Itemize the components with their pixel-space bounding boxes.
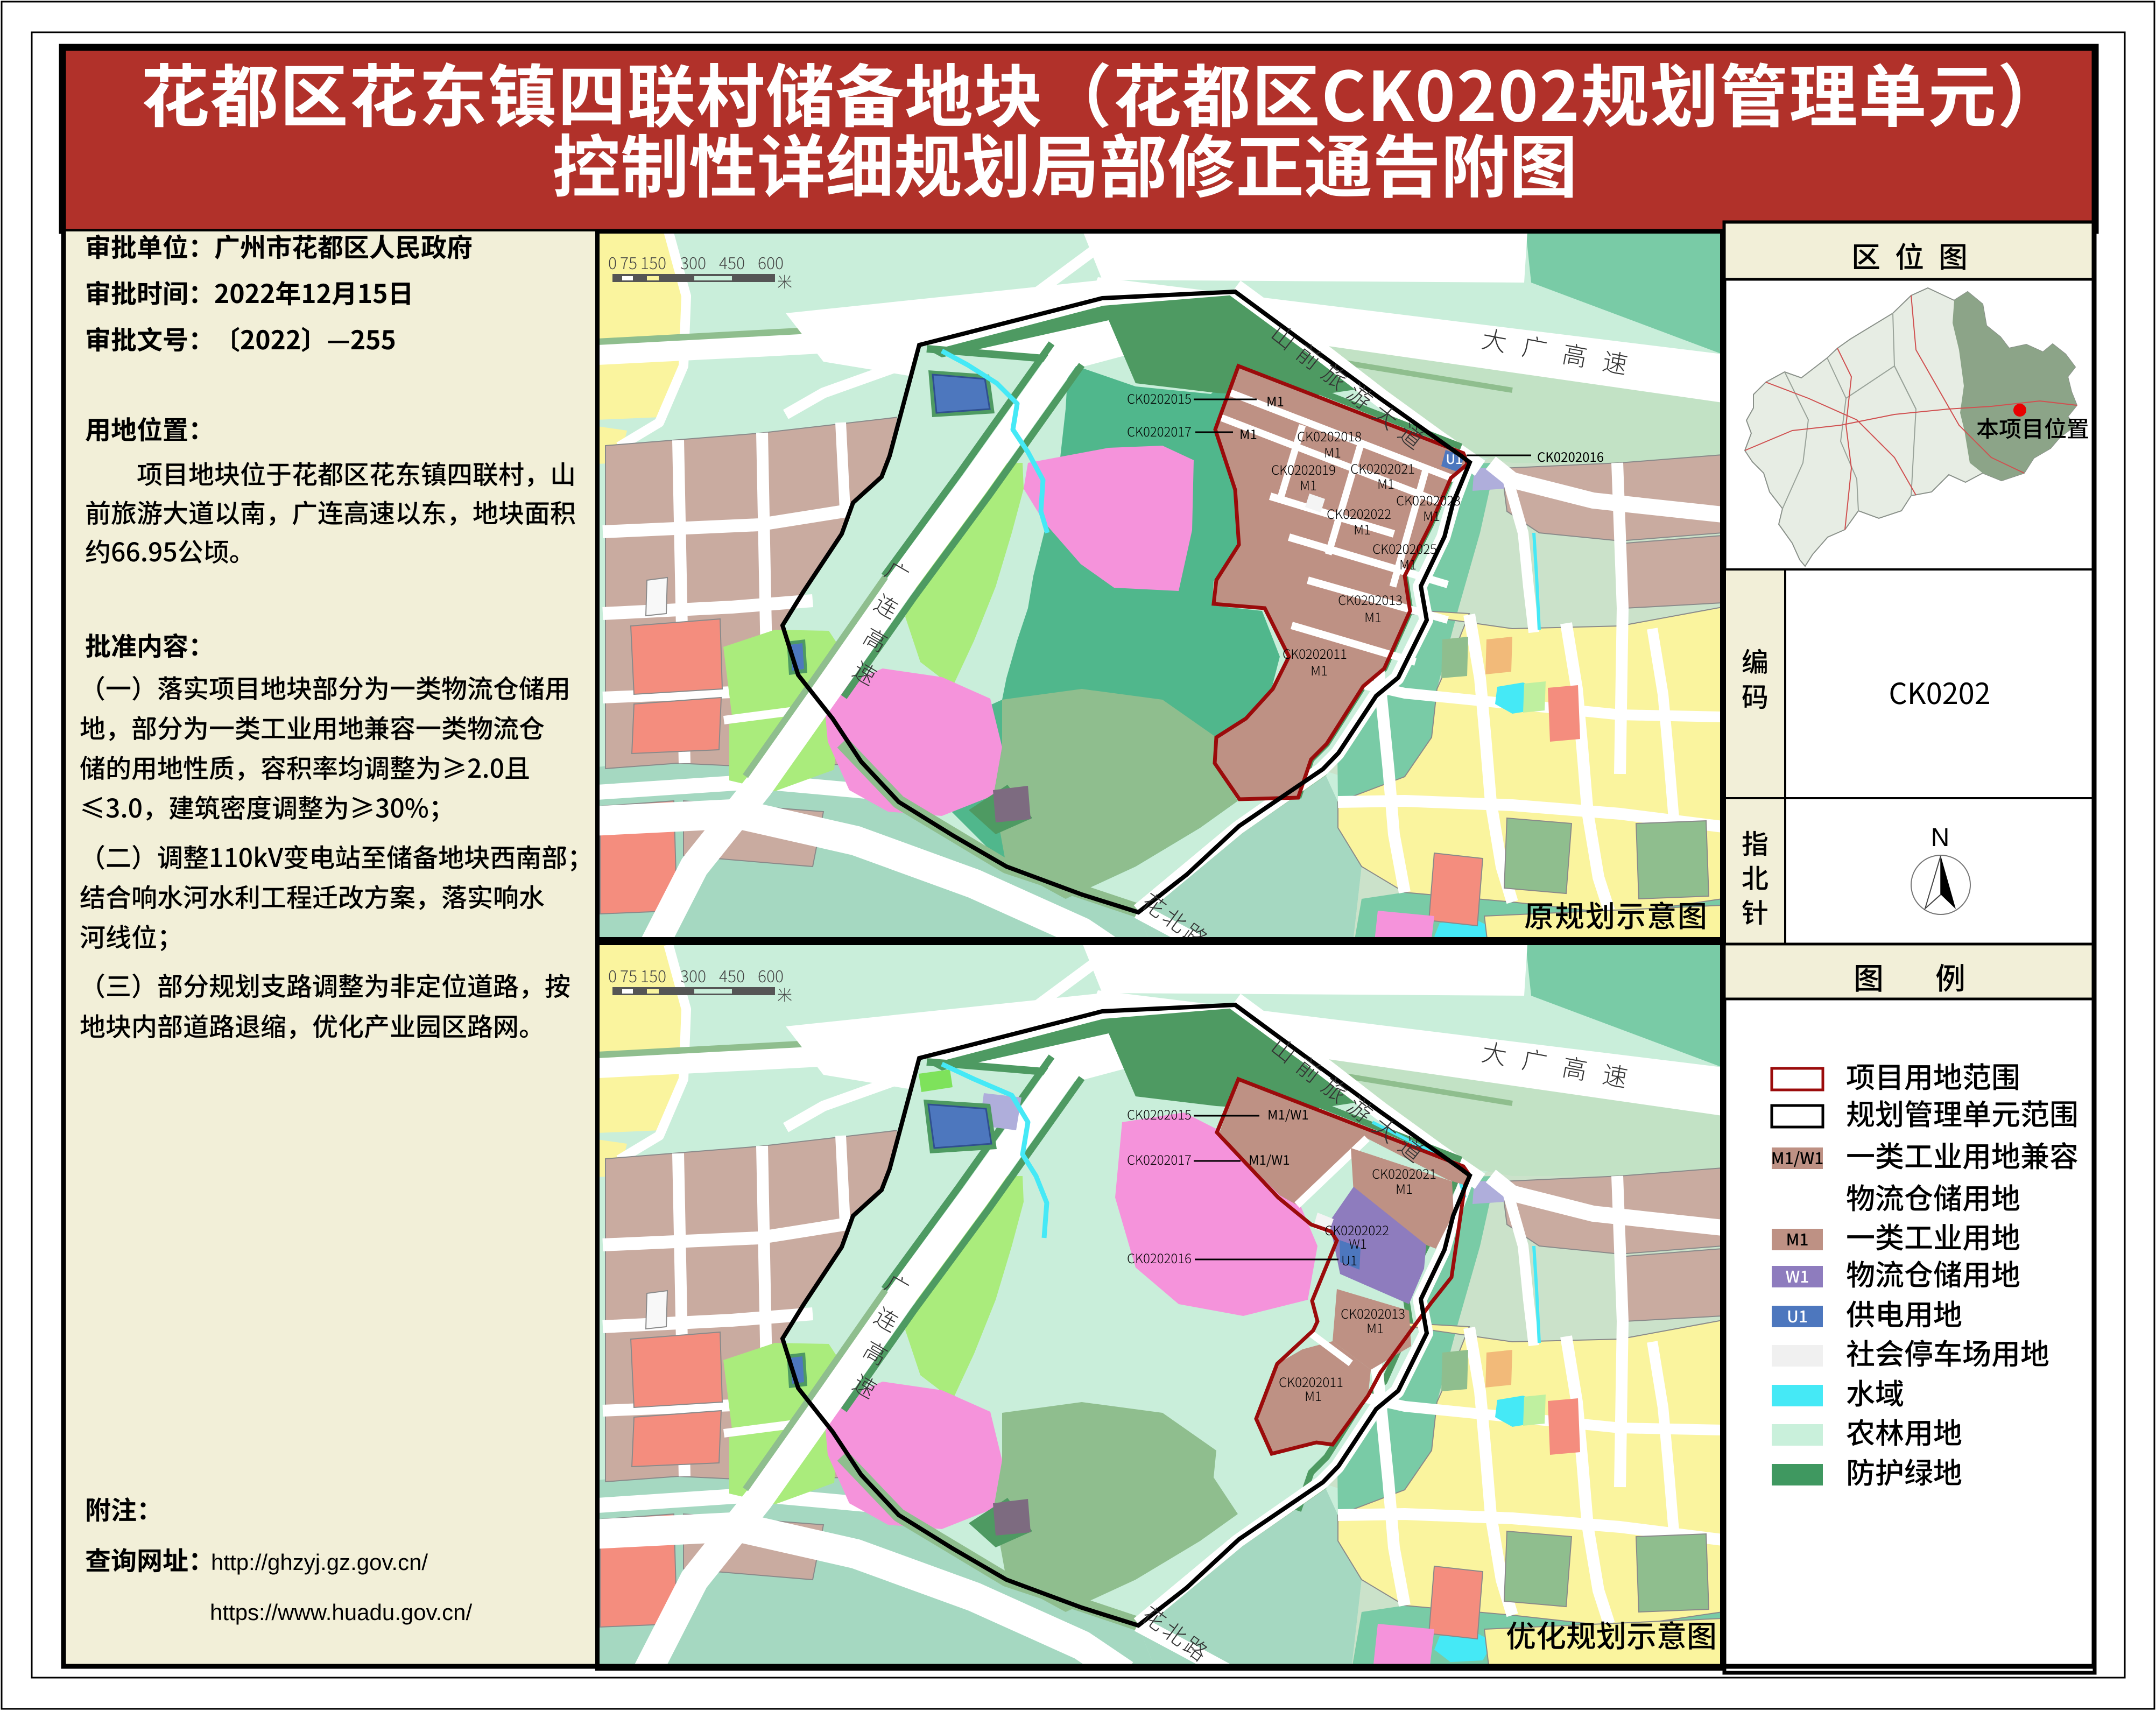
svg-text:N: N [1931, 823, 1950, 852]
svg-text:https://www.huadu.gov.cn/: https://www.huadu.gov.cn/ [210, 1600, 472, 1625]
svg-text:http://ghzyj.gz.gov.cn/: http://ghzyj.gz.gov.cn/ [211, 1550, 428, 1575]
